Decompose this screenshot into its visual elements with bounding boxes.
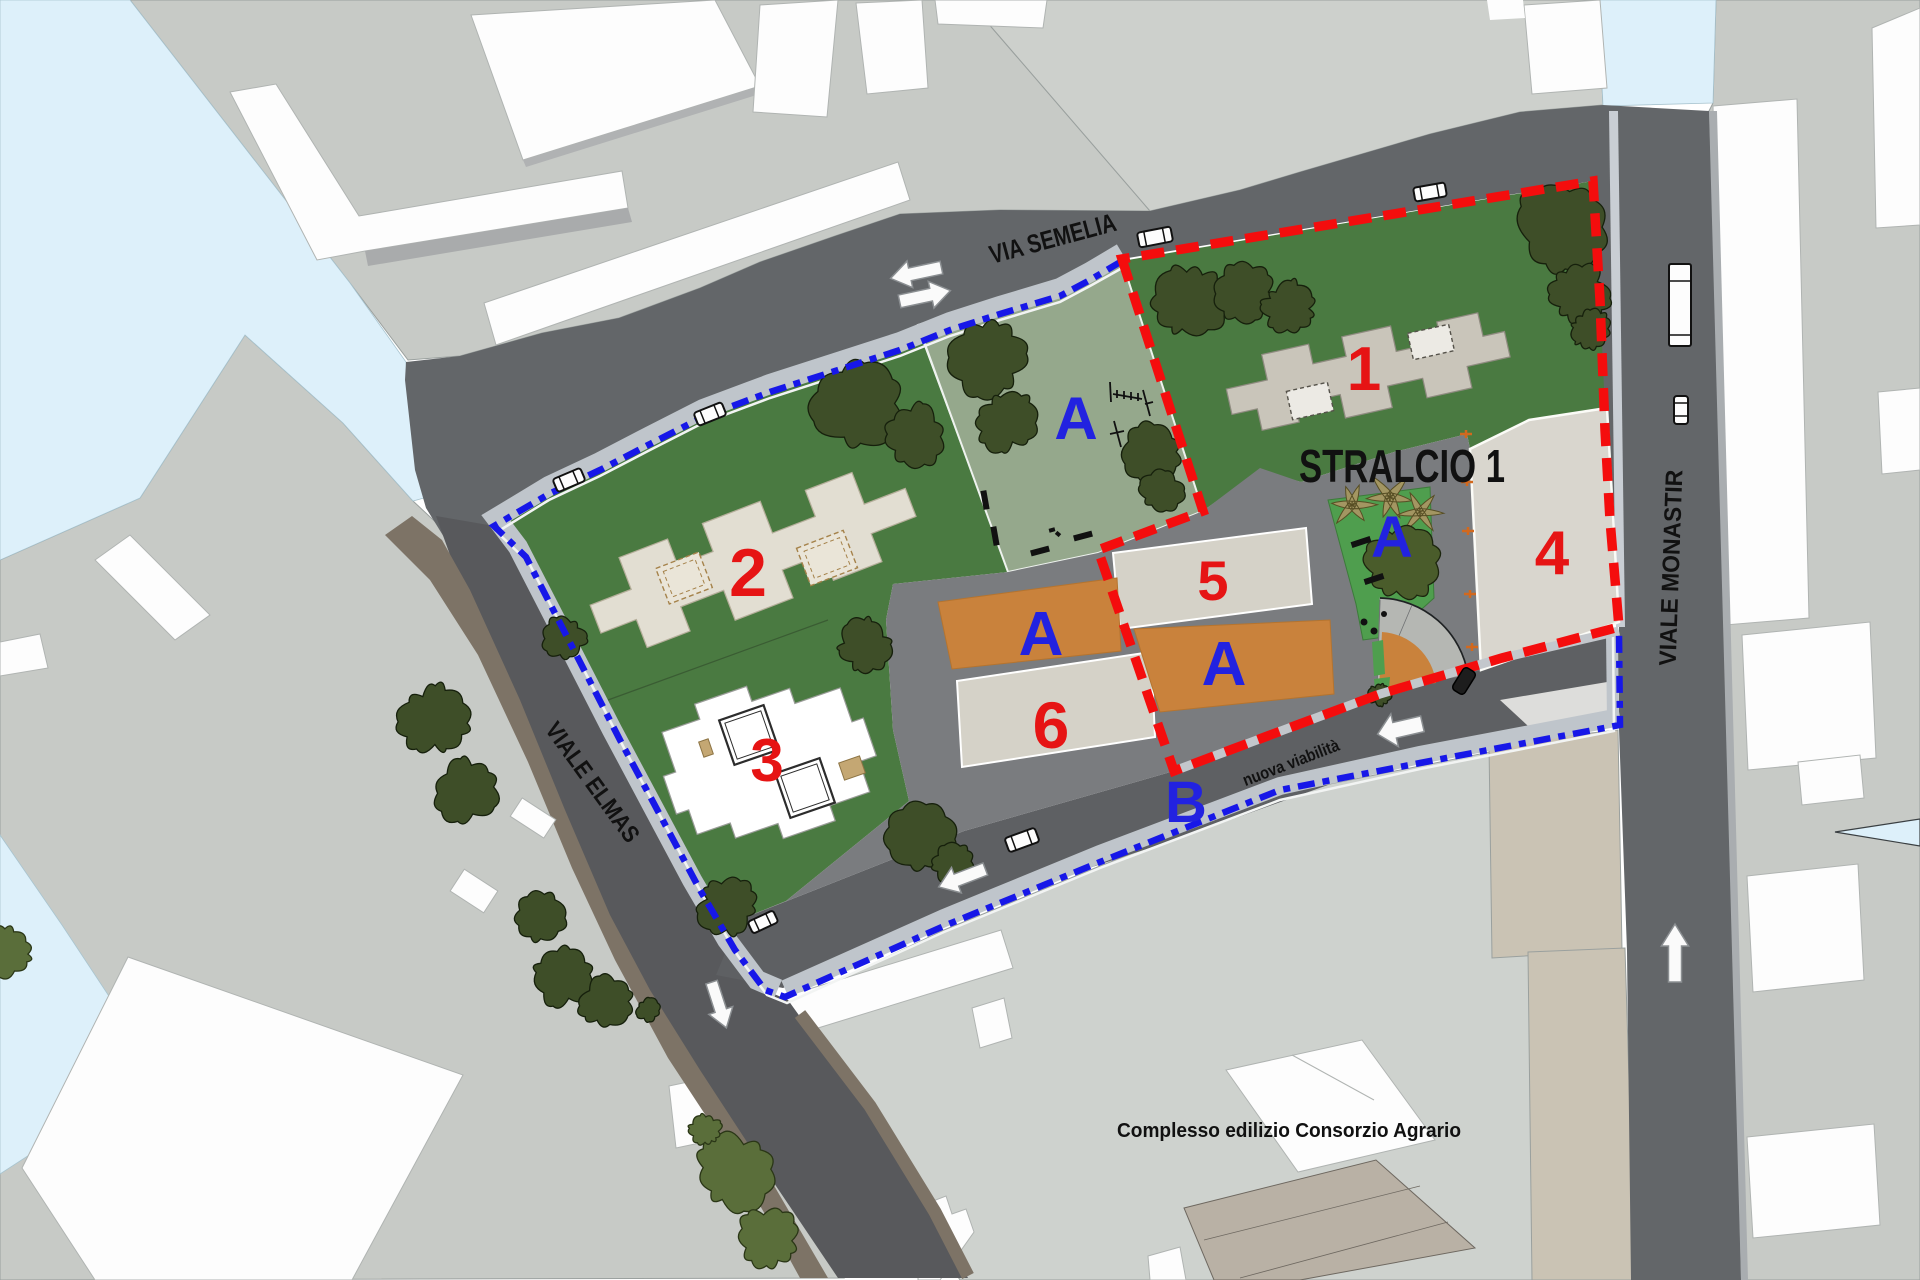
svg-text:3: 3 (750, 727, 783, 794)
svg-text:A: A (1371, 505, 1413, 570)
svg-text:6: 6 (1033, 688, 1070, 762)
svg-text:B: B (1165, 770, 1207, 835)
svg-text:A: A (1054, 385, 1097, 452)
svg-text:4: 4 (1535, 519, 1570, 588)
svg-text:A: A (1019, 600, 1064, 669)
svg-text:2: 2 (729, 535, 767, 611)
svg-text:5: 5 (1197, 549, 1228, 612)
svg-text:1: 1 (1347, 335, 1381, 404)
svg-text:STRALCIO 1: STRALCIO 1 (1299, 440, 1505, 492)
svg-text:A: A (1202, 630, 1247, 699)
svg-text:Complesso edilizio Consorzio A: Complesso edilizio Consorzio Agrario (1117, 1120, 1461, 1142)
